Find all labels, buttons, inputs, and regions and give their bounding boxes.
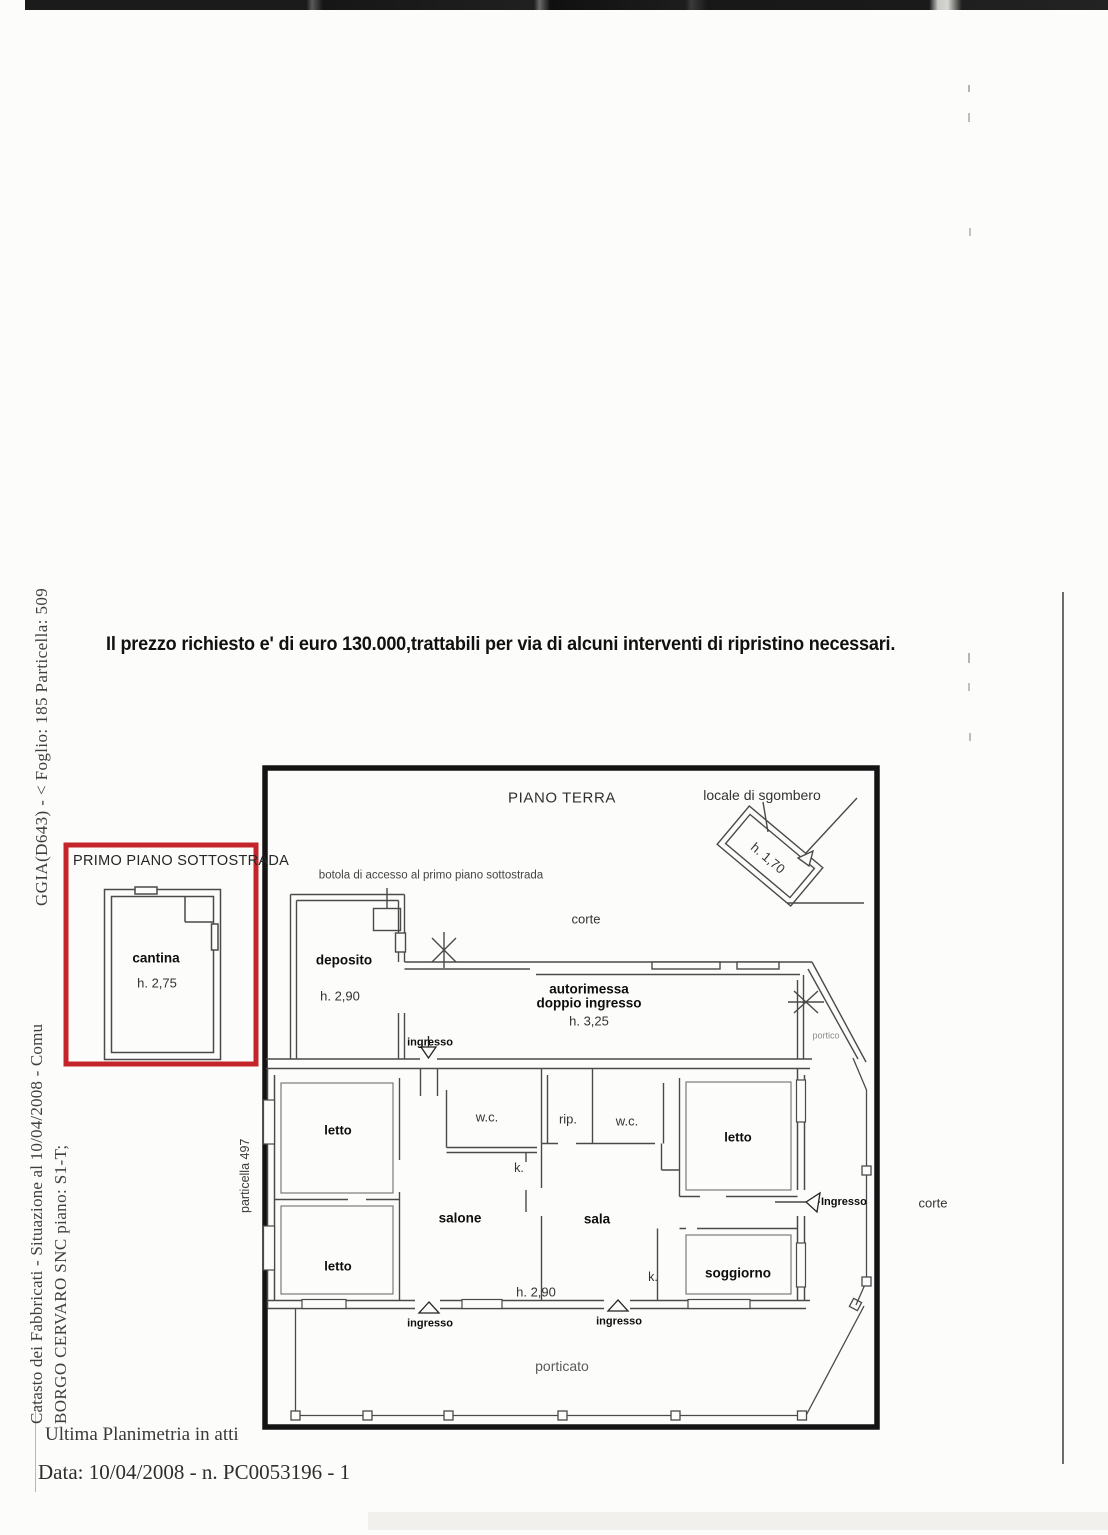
label-interior-height: h. 2,90 — [516, 1286, 556, 1299]
plan-title: PIANO TERRA — [508, 791, 616, 806]
label-sala: sala — [584, 1212, 610, 1226]
label-portico: portico — [812, 1032, 839, 1041]
basement-box-title: PRIMO PIANO SOTTOSTRADA — [73, 854, 289, 869]
label-ingresso-right: Ingresso — [821, 1197, 867, 1208]
label-ingresso-top: ingresso — [407, 1038, 453, 1049]
label-cantina: cantina — [132, 951, 179, 965]
middle-wall-band — [266, 1059, 812, 1069]
label-wc-center: w.c. — [616, 1115, 638, 1128]
label-ingresso-bottom-left: ingresso — [407, 1319, 453, 1330]
label-letto-top-right: letto — [724, 1131, 751, 1144]
label-deposito-height: h. 2,90 — [320, 990, 360, 1003]
label-salone: salone — [439, 1211, 482, 1225]
label-cantina-height: h. 2,75 — [137, 977, 177, 990]
label-wc-left: w.c. — [476, 1111, 498, 1124]
label-k-right: k. — [648, 1271, 658, 1284]
floorplan-linework — [0, 0, 1108, 1535]
cantina-room — [105, 887, 221, 1060]
label-rip: rip. — [559, 1113, 577, 1126]
label-porticato: porticato — [535, 1359, 589, 1373]
scanned-document-page: Il prezzo richiesto e' di euro 130.000,t… — [0, 0, 1108, 1535]
label-autorimessa-height: h. 3,25 — [569, 1015, 609, 1028]
locale-sgombero-box — [717, 798, 864, 906]
label-autorimessa-line2: doppio ingresso — [536, 996, 641, 1010]
label-locale-sgombero: locale di sgombero — [703, 788, 821, 802]
label-deposito: deposito — [316, 953, 372, 967]
label-botola: botola di accesso al primo piano sottost… — [319, 870, 543, 882]
door-cross-right — [788, 991, 824, 1013]
room-inner-walls — [281, 1082, 791, 1294]
deposito-room — [291, 888, 406, 1059]
label-ingresso-bottom-center: ingresso — [596, 1317, 642, 1328]
label-corte-top: corte — [572, 913, 601, 926]
label-k-left: k. — [514, 1162, 524, 1175]
label-autorimessa-line1: autorimessa — [549, 982, 629, 996]
label-corte-right: corte — [919, 1197, 948, 1210]
courtyard-boundary — [853, 1058, 871, 1305]
label-letto-bottom-left: letto — [324, 1260, 351, 1273]
label-letto-top-left: letto — [324, 1124, 351, 1137]
label-soggiorno: soggiorno — [705, 1266, 771, 1280]
